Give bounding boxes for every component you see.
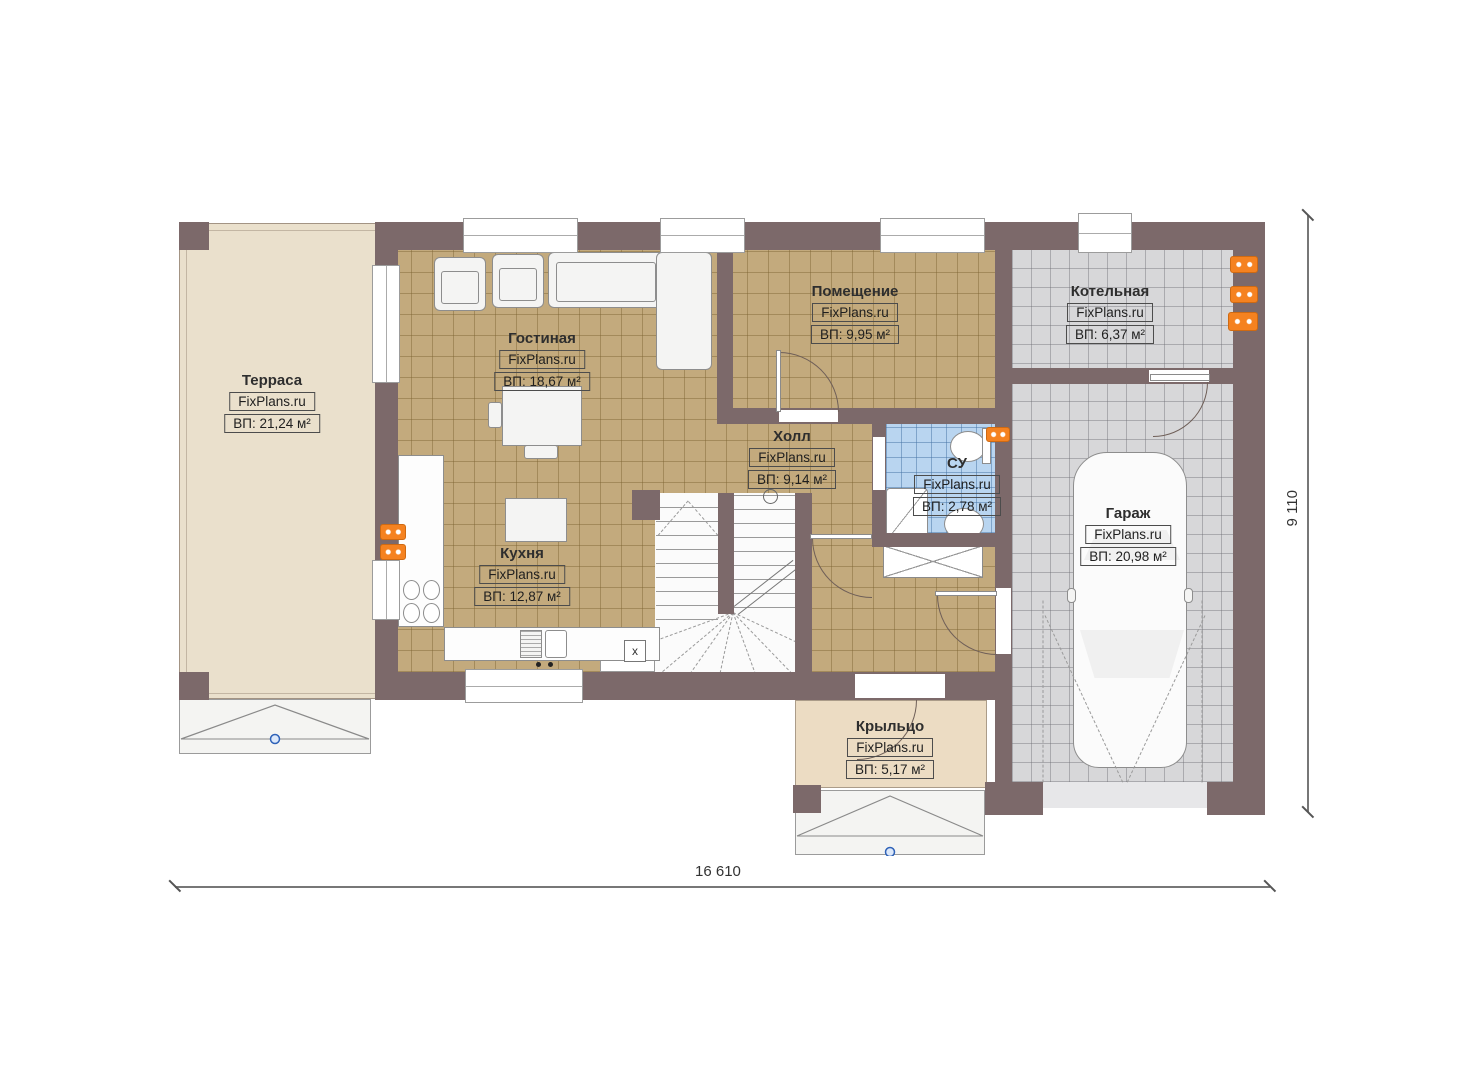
room-name: Крыльцо — [856, 718, 924, 735]
porch-steps — [795, 790, 985, 856]
garage-door-dashed-line — [1202, 601, 1203, 783]
sink-basin — [545, 630, 567, 658]
room-area: ВП: 18,67 м² — [494, 372, 590, 391]
watermark: FixPlans.ru — [1085, 525, 1171, 544]
stove-burner — [423, 603, 440, 623]
under-stair-marker-label: x — [632, 644, 638, 658]
radiator — [1228, 312, 1258, 331]
wall-stair-spine — [718, 493, 734, 614]
room-area: ВП: 2,78 м² — [913, 497, 1001, 516]
sink-drainer — [520, 630, 542, 658]
car-windshield — [1080, 630, 1184, 678]
watermark: FixPlans.ru — [812, 303, 898, 322]
wall-bathroom-bottom — [872, 533, 1012, 547]
terrace-steps — [179, 699, 371, 755]
room-area: ВП: 9,14 м² — [748, 470, 836, 489]
window — [463, 218, 578, 253]
wall-living-room-divider — [717, 250, 733, 420]
watermark: FixPlans.ru — [914, 475, 1000, 494]
radiator — [380, 544, 406, 560]
closet-crossed-box — [883, 545, 983, 578]
room-area: ВП: 5,17 м² — [846, 760, 934, 779]
stove-burner — [423, 580, 440, 600]
door-leaf-bathroom — [810, 534, 872, 539]
room-label-hall: Холл FixPlans.ru ВП: 9,14 м² — [748, 428, 836, 489]
armchair-seat — [499, 268, 537, 301]
room-name: СУ — [947, 455, 967, 472]
terrace-pillar-top — [179, 222, 209, 250]
porch-door-opening — [855, 674, 945, 698]
car-top-view — [1073, 452, 1187, 768]
sink-fitting-dot — [548, 662, 553, 667]
room-label-utility-room: Помещение FixPlans.ru ВП: 9,95 м² — [811, 283, 899, 344]
room-name: Гараж — [1106, 505, 1151, 522]
window-boiler — [1078, 213, 1132, 253]
room-area: ВП: 6,37 м² — [1066, 325, 1154, 344]
radiator — [986, 427, 1010, 442]
window-terrace — [372, 265, 400, 383]
wall-stair-right — [795, 493, 812, 672]
porch-pillar — [793, 785, 821, 813]
radiator — [380, 524, 406, 540]
radiator — [1230, 256, 1258, 273]
kitchen-island — [505, 498, 567, 542]
room-label-porch: Крыльцо FixPlans.ru ВП: 5,17 м² — [846, 718, 934, 779]
room-area: ВП: 20,98 м² — [1080, 547, 1176, 566]
window — [660, 218, 745, 253]
terrace-inner-line — [186, 230, 385, 694]
window-kitchen-bottom — [465, 669, 583, 703]
room-label-terrace: Терраса FixPlans.ru ВП: 21,24 м² — [224, 372, 320, 433]
garage-door-dashed-line — [1043, 601, 1044, 783]
bathroom-door-opening — [873, 437, 885, 490]
door-leaf-garage — [935, 591, 997, 596]
room-area: ВП: 9,95 м² — [811, 325, 899, 344]
sink-fitting-dot — [536, 662, 541, 667]
stove-burner — [403, 603, 420, 623]
dining-table — [502, 386, 582, 446]
window — [880, 218, 985, 253]
dimension-width-label: 16 610 — [695, 863, 741, 880]
radiator — [1230, 286, 1258, 303]
dimension-line-bottom — [175, 886, 1270, 888]
dimension-height-label: 9 110 — [1284, 490, 1301, 526]
room-name: Котельная — [1071, 283, 1150, 300]
kitchen-counter-left — [398, 455, 444, 627]
sofa-seat — [556, 262, 656, 302]
room-label-garage: Гараж FixPlans.ru ВП: 20,98 м² — [1080, 505, 1176, 566]
room-area: ВП: 12,87 м² — [474, 587, 570, 606]
hall-fixture-circle — [763, 489, 778, 504]
garage-door-opening-hall — [996, 588, 1011, 654]
room-name: Гостиная — [508, 330, 576, 347]
dining-chair — [524, 445, 558, 459]
door-leaf-room — [776, 350, 781, 412]
car-mirror — [1184, 588, 1193, 603]
door-leaf-boiler — [1150, 374, 1210, 381]
room-name: Терраса — [242, 372, 302, 389]
room-label-boiler-room: Котельная FixPlans.ru ВП: 6,37 м² — [1066, 283, 1154, 344]
garage-door-stub-right — [1207, 782, 1265, 815]
dining-chair — [488, 402, 502, 428]
room-label-living-room: Гостиная FixPlans.ru ВП: 18,67 м² — [494, 330, 590, 391]
room-area: ВП: 21,24 м² — [224, 414, 320, 433]
sofa-chaise — [656, 252, 712, 370]
terrace-pillar-bottom — [179, 672, 209, 700]
watermark: FixPlans.ru — [749, 448, 835, 467]
wall-exterior-right — [1233, 222, 1265, 813]
stair-winder-ray — [733, 612, 793, 672]
watermark: FixPlans.ru — [847, 738, 933, 757]
garage-apron — [1043, 782, 1207, 808]
wall-room-hall-divider — [717, 408, 1012, 424]
car-mirror — [1067, 588, 1076, 603]
room-name: Кухня — [500, 545, 544, 562]
stove-burner — [403, 580, 420, 600]
wall-stair-stub — [632, 490, 660, 520]
watermark: FixPlans.ru — [1067, 303, 1153, 322]
watermark: FixPlans.ru — [479, 565, 565, 584]
room-name: Помещение — [812, 283, 899, 300]
window-kitchen-left — [372, 560, 400, 620]
watermark: FixPlans.ru — [229, 392, 315, 411]
room-name: Холл — [773, 428, 811, 445]
watermark: FixPlans.ru — [499, 350, 585, 369]
room-label-bathroom: СУ FixPlans.ru ВП: 2,78 м² — [913, 455, 1001, 516]
under-stair-marker-box: x — [624, 640, 646, 662]
floor-plan-canvas: x — [0, 0, 1474, 1080]
armchair-seat — [441, 271, 479, 304]
wall-garage-left — [995, 250, 1012, 790]
garage-door-stub-left — [985, 782, 1043, 815]
room-label-kitchen: Кухня FixPlans.ru ВП: 12,87 м² — [474, 545, 570, 606]
dimension-line-right — [1307, 215, 1309, 812]
